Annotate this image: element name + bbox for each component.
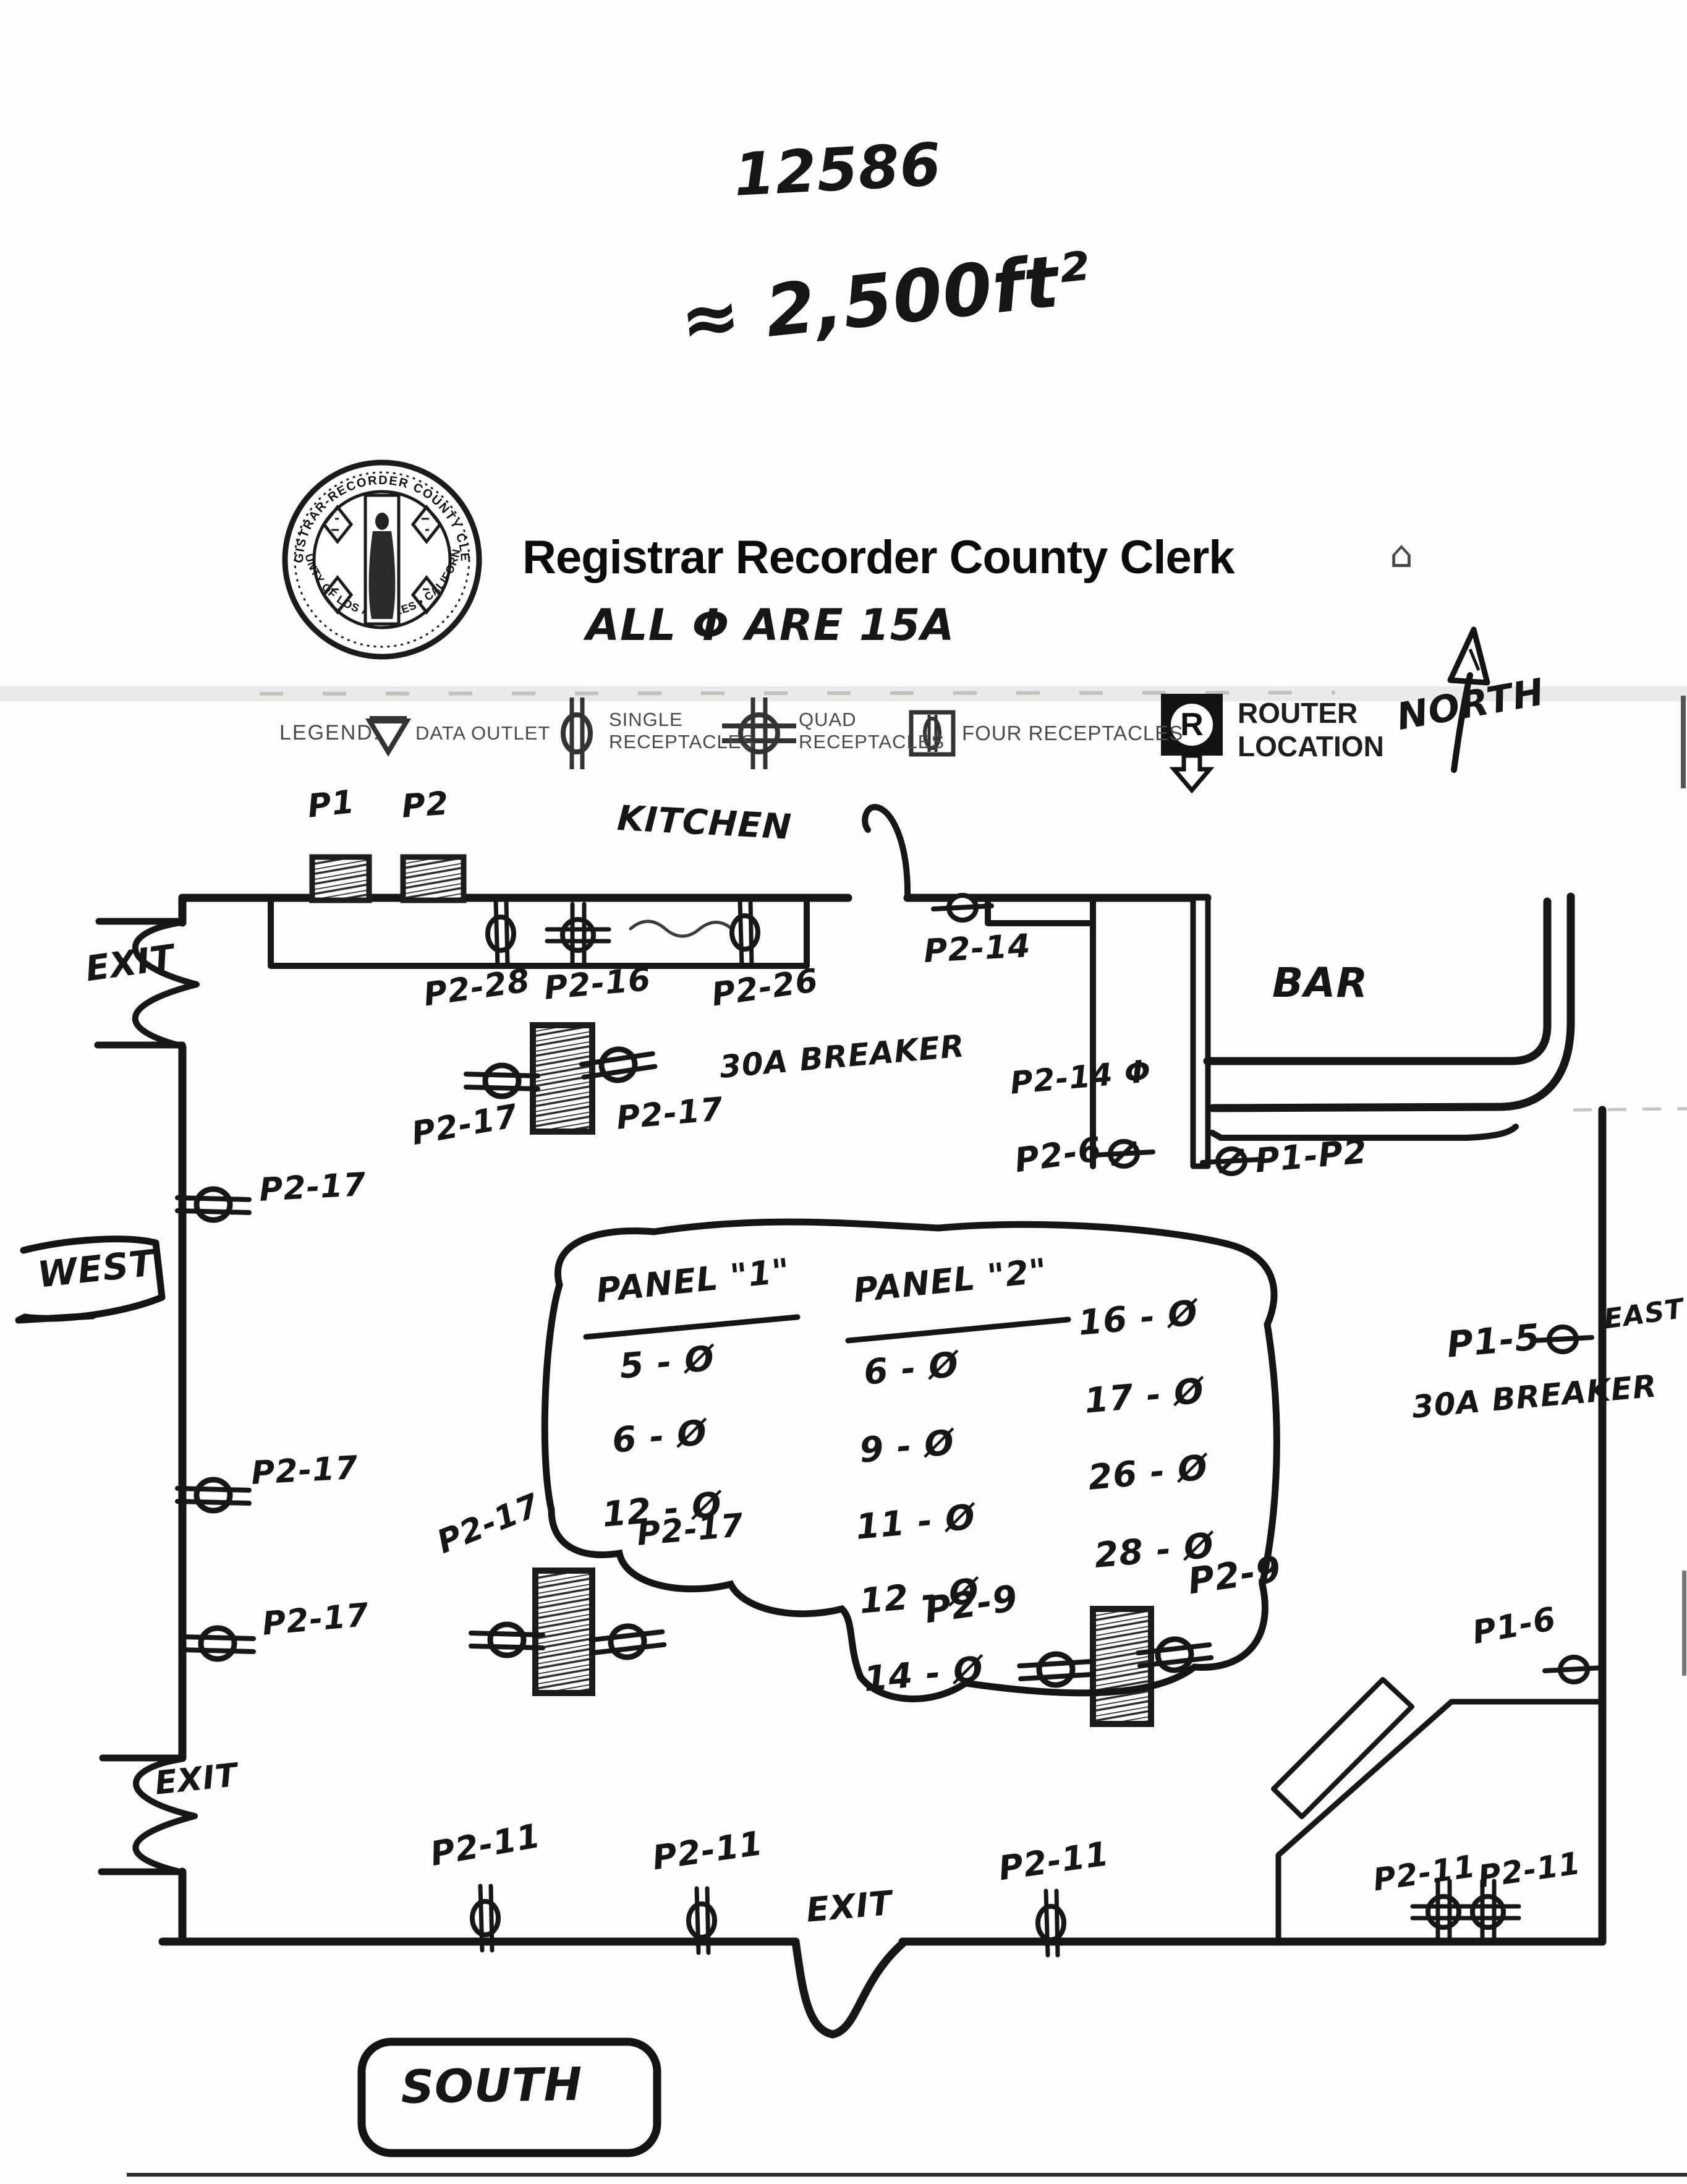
plan-label: 17 - Ø [1083, 1373, 1205, 1420]
plan-label: ≈ 2,500ft² [677, 241, 1094, 359]
plan-label: P2-11 [1371, 1850, 1477, 1896]
plan-label: 16 - Ø [1077, 1295, 1199, 1342]
plan-label: 9 - Ø [858, 1425, 956, 1470]
plan-label: EXIT [153, 1759, 239, 1801]
plan-label: P1-6 [1470, 1602, 1558, 1650]
scanned-floor-plan-page: REGISTRAR-RECORDER COUNTY CLERK COUNTY O… [0, 0, 1687, 2184]
plan-label: P1 [306, 785, 357, 824]
plan-label: P2-16 [543, 963, 652, 1005]
plan-label: 6 - Ø [862, 1347, 960, 1392]
plan-label: P2-17 [615, 1093, 725, 1135]
plan-label: PANEL "2" [852, 1253, 1049, 1308]
plan-label: BAR [1272, 962, 1368, 1004]
plan-label: EXIT [83, 940, 177, 988]
plan-label: P1-5 [1445, 1318, 1542, 1364]
plan-label: P2-28 [422, 964, 532, 1012]
plan-label: P2-17 [433, 1488, 545, 1560]
plan-labels-layer: 12586≈ 2,500ft²NORTHP1P2KITCHENP2-28P2-1… [0, 0, 1687, 2184]
plan-label: 6 - Ø [611, 1415, 708, 1460]
plan-label: EAST [1602, 1295, 1686, 1334]
plan-label: 30A BREAKER [718, 1030, 966, 1083]
plan-label: P2-14 Φ [1009, 1055, 1152, 1099]
plan-label: 30A BREAKER [1411, 1370, 1659, 1423]
plan-label: P2-17 [635, 1509, 745, 1551]
plan-label: 14 - Ø [862, 1652, 985, 1698]
plan-label: P2-11 [996, 1836, 1111, 1887]
plan-label: P2-26 [710, 964, 820, 1012]
plan-label: KITCHEN [616, 801, 793, 847]
plan-label: P2-14 [923, 929, 1032, 969]
plan-label: EXIT [805, 1886, 894, 1929]
plan-label: 11 - Ø [854, 1499, 977, 1546]
plan-label: 26 - Ø [1087, 1450, 1209, 1496]
plan-label: P2-17 [409, 1099, 521, 1151]
plan-label: P2 [401, 787, 450, 824]
plan-label: 5 - Ø [618, 1341, 716, 1386]
plan-label: NORTH [1394, 673, 1547, 737]
plan-label: P1-P2 [1254, 1134, 1369, 1179]
plan-label: P2-11 [428, 1819, 543, 1872]
plan-label: WEST [36, 1244, 156, 1294]
plan-label: P2-17 [250, 1451, 359, 1491]
plan-label: PANEL "1" [595, 1253, 792, 1308]
plan-label: P2-6 [1013, 1132, 1104, 1179]
plan-label: P2-17 [261, 1598, 370, 1641]
plan-label: P2-11 [1476, 1847, 1583, 1893]
plan-label: SOUTH [401, 2061, 583, 2112]
plan-label: P2-11 [650, 1826, 765, 1876]
plan-label: P2-17 [258, 1168, 367, 1208]
plan-label: 12586 [733, 134, 943, 207]
